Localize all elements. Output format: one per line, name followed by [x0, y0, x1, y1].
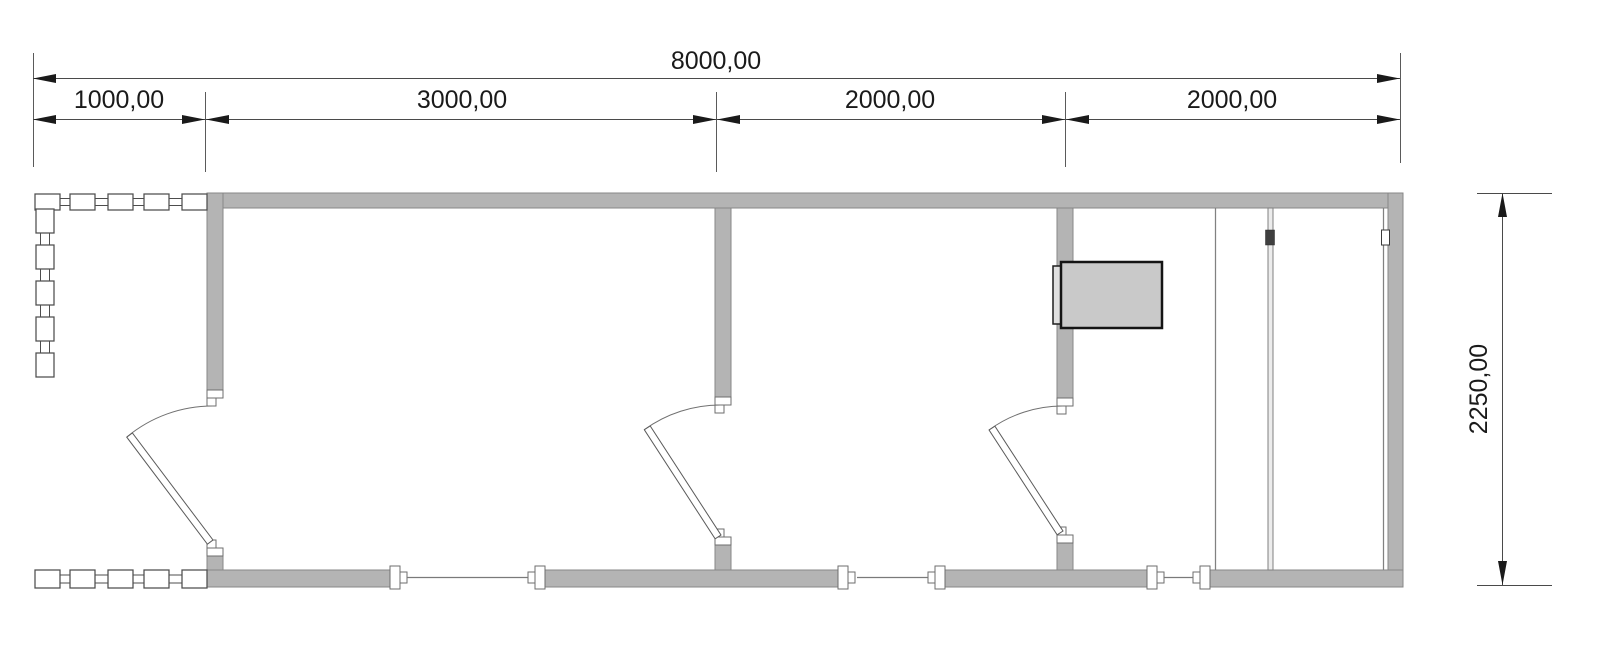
- arrow-left-icon: [1066, 115, 1089, 124]
- door-swing-arc: [644, 405, 721, 430]
- window-jamb-step: [400, 572, 407, 583]
- door-leaf: [989, 426, 1063, 535]
- door-jamb-step: [715, 405, 724, 413]
- door-leaf: [127, 433, 213, 544]
- arrow-right-icon: [1377, 115, 1400, 124]
- door-jamb: [207, 548, 223, 556]
- bottom-wall-segment-2: [545, 570, 838, 587]
- window-jamb-step: [1157, 572, 1164, 583]
- height-label: 2250,00: [1465, 344, 1493, 434]
- bottom-wall-segment-1: [207, 570, 390, 587]
- total-width-dimension: 8000,00: [33, 47, 1400, 83]
- railing-post: [144, 570, 169, 588]
- railing-post: [36, 353, 54, 377]
- top-dimensions: 8000,00 1000,00 3000,00 2000,00 2000,00: [33, 47, 1401, 172]
- window-jamb-step: [528, 572, 535, 583]
- segment-label-1000: 1000,00: [74, 86, 164, 114]
- porch-railing: [35, 194, 207, 588]
- door-leaf: [644, 426, 721, 539]
- window-3: [1147, 566, 1210, 589]
- door-jamb: [207, 390, 223, 398]
- window-jamb: [838, 566, 848, 589]
- railing-post: [36, 209, 54, 233]
- arrow-down-icon: [1498, 561, 1507, 585]
- panel-handle-icon: [1382, 230, 1390, 245]
- arrow-right-icon: [1042, 115, 1065, 124]
- door-swing-arc: [989, 406, 1063, 430]
- railing-post: [108, 570, 133, 588]
- railing-post: [182, 570, 207, 588]
- panel-handle-icon: [1266, 230, 1275, 245]
- window-2: [838, 566, 945, 589]
- partition-wall-1: [715, 208, 731, 397]
- window-jamb: [535, 566, 545, 589]
- right-wall: [1388, 193, 1403, 587]
- railing-post: [70, 194, 95, 210]
- arrow-right-icon: [182, 115, 205, 124]
- arrow-left-icon: [717, 115, 740, 124]
- door-jamb: [1057, 398, 1073, 406]
- railing-post: [182, 194, 207, 210]
- segment-label-2000a: 2000,00: [845, 86, 935, 114]
- door-jamb: [715, 537, 731, 545]
- door-jamb-step: [1057, 406, 1066, 414]
- window-jamb-step: [848, 572, 855, 583]
- window-jamb-step: [928, 572, 935, 583]
- partition-wall-2-stub: [1057, 543, 1073, 570]
- bottom-wall-segment-3: [945, 570, 1147, 587]
- window-jamb-step: [1193, 572, 1200, 583]
- sliding-panel-track: [1268, 208, 1273, 570]
- railing-post: [70, 570, 95, 588]
- window-jamb: [1147, 566, 1157, 589]
- heater: [1053, 262, 1162, 328]
- window-jamb: [1200, 566, 1210, 589]
- door-jamb: [1057, 535, 1073, 543]
- segment-label-2000b: 2000,00: [1187, 86, 1277, 114]
- arrow-left-icon: [33, 115, 56, 124]
- railing-post: [36, 245, 54, 269]
- railing-post: [108, 194, 133, 210]
- railing-post: [35, 570, 60, 588]
- door-entrance: [127, 390, 223, 556]
- door-room2: [644, 397, 731, 545]
- door-swing-arc: [127, 406, 213, 437]
- arrow-up-icon: [1498, 193, 1507, 217]
- partition-wall-1-stub: [715, 545, 731, 570]
- segment-label-3000: 3000,00: [417, 86, 507, 114]
- arrow-left-icon: [206, 115, 229, 124]
- floor-plan-canvas: 8000,00 1000,00 3000,00 2000,00 2000,00 …: [0, 0, 1600, 645]
- window-jamb: [935, 566, 945, 589]
- floor-plan-page: 8000,00 1000,00 3000,00 2000,00 2000,00 …: [0, 0, 1600, 645]
- sliding-panels: [1216, 208, 1390, 570]
- door-room3: [989, 398, 1073, 543]
- railing-post: [36, 317, 54, 341]
- arrow-right-icon: [1377, 74, 1400, 83]
- arrow-left-icon: [33, 74, 56, 83]
- heater-body: [1061, 262, 1162, 328]
- window-1: [390, 566, 545, 589]
- top-wall: [207, 193, 1403, 208]
- bottom-wall-segment-4: [1210, 570, 1403, 587]
- window-jamb: [390, 566, 400, 589]
- railing-post: [35, 194, 60, 210]
- railing-post: [144, 194, 169, 210]
- arrow-right-icon: [693, 115, 716, 124]
- door-jamb: [715, 397, 731, 405]
- walls: [207, 193, 1403, 587]
- door-jamb-step: [207, 398, 216, 406]
- total-width-label: 8000,00: [671, 47, 761, 75]
- height-dimension: 2250,00: [1465, 193, 1552, 586]
- left-wall-upper: [207, 193, 223, 390]
- railing-post: [36, 281, 54, 305]
